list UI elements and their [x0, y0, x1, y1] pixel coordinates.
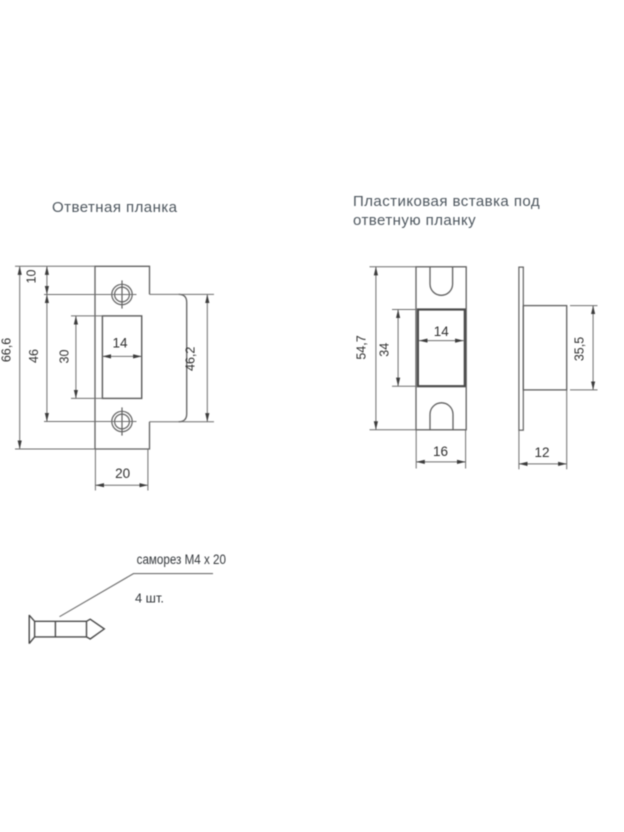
svg-text:66,6: 66,6	[0, 338, 14, 362]
svg-text:54,7: 54,7	[354, 335, 368, 359]
svg-text:30: 30	[58, 350, 72, 364]
svg-text:16: 16	[433, 444, 448, 459]
svg-text:46,2: 46,2	[184, 347, 198, 371]
svg-text:ответную планку: ответную планку	[353, 212, 476, 229]
svg-text:20: 20	[115, 466, 130, 481]
svg-text:Ответная планка: Ответная планка	[52, 199, 178, 216]
svg-text:12: 12	[534, 445, 549, 460]
svg-text:4 шт.: 4 шт.	[135, 591, 164, 606]
svg-text:46: 46	[27, 349, 41, 363]
svg-text:14: 14	[112, 336, 128, 351]
svg-text:34: 34	[377, 343, 391, 357]
svg-text:саморез M4 x 20: саморез M4 x 20	[137, 551, 226, 567]
svg-text:Пластиковая вставка под: Пластиковая вставка под	[353, 193, 540, 210]
svg-text:14: 14	[434, 324, 450, 339]
svg-text:35,5: 35,5	[572, 337, 586, 361]
svg-text:10: 10	[25, 270, 39, 284]
